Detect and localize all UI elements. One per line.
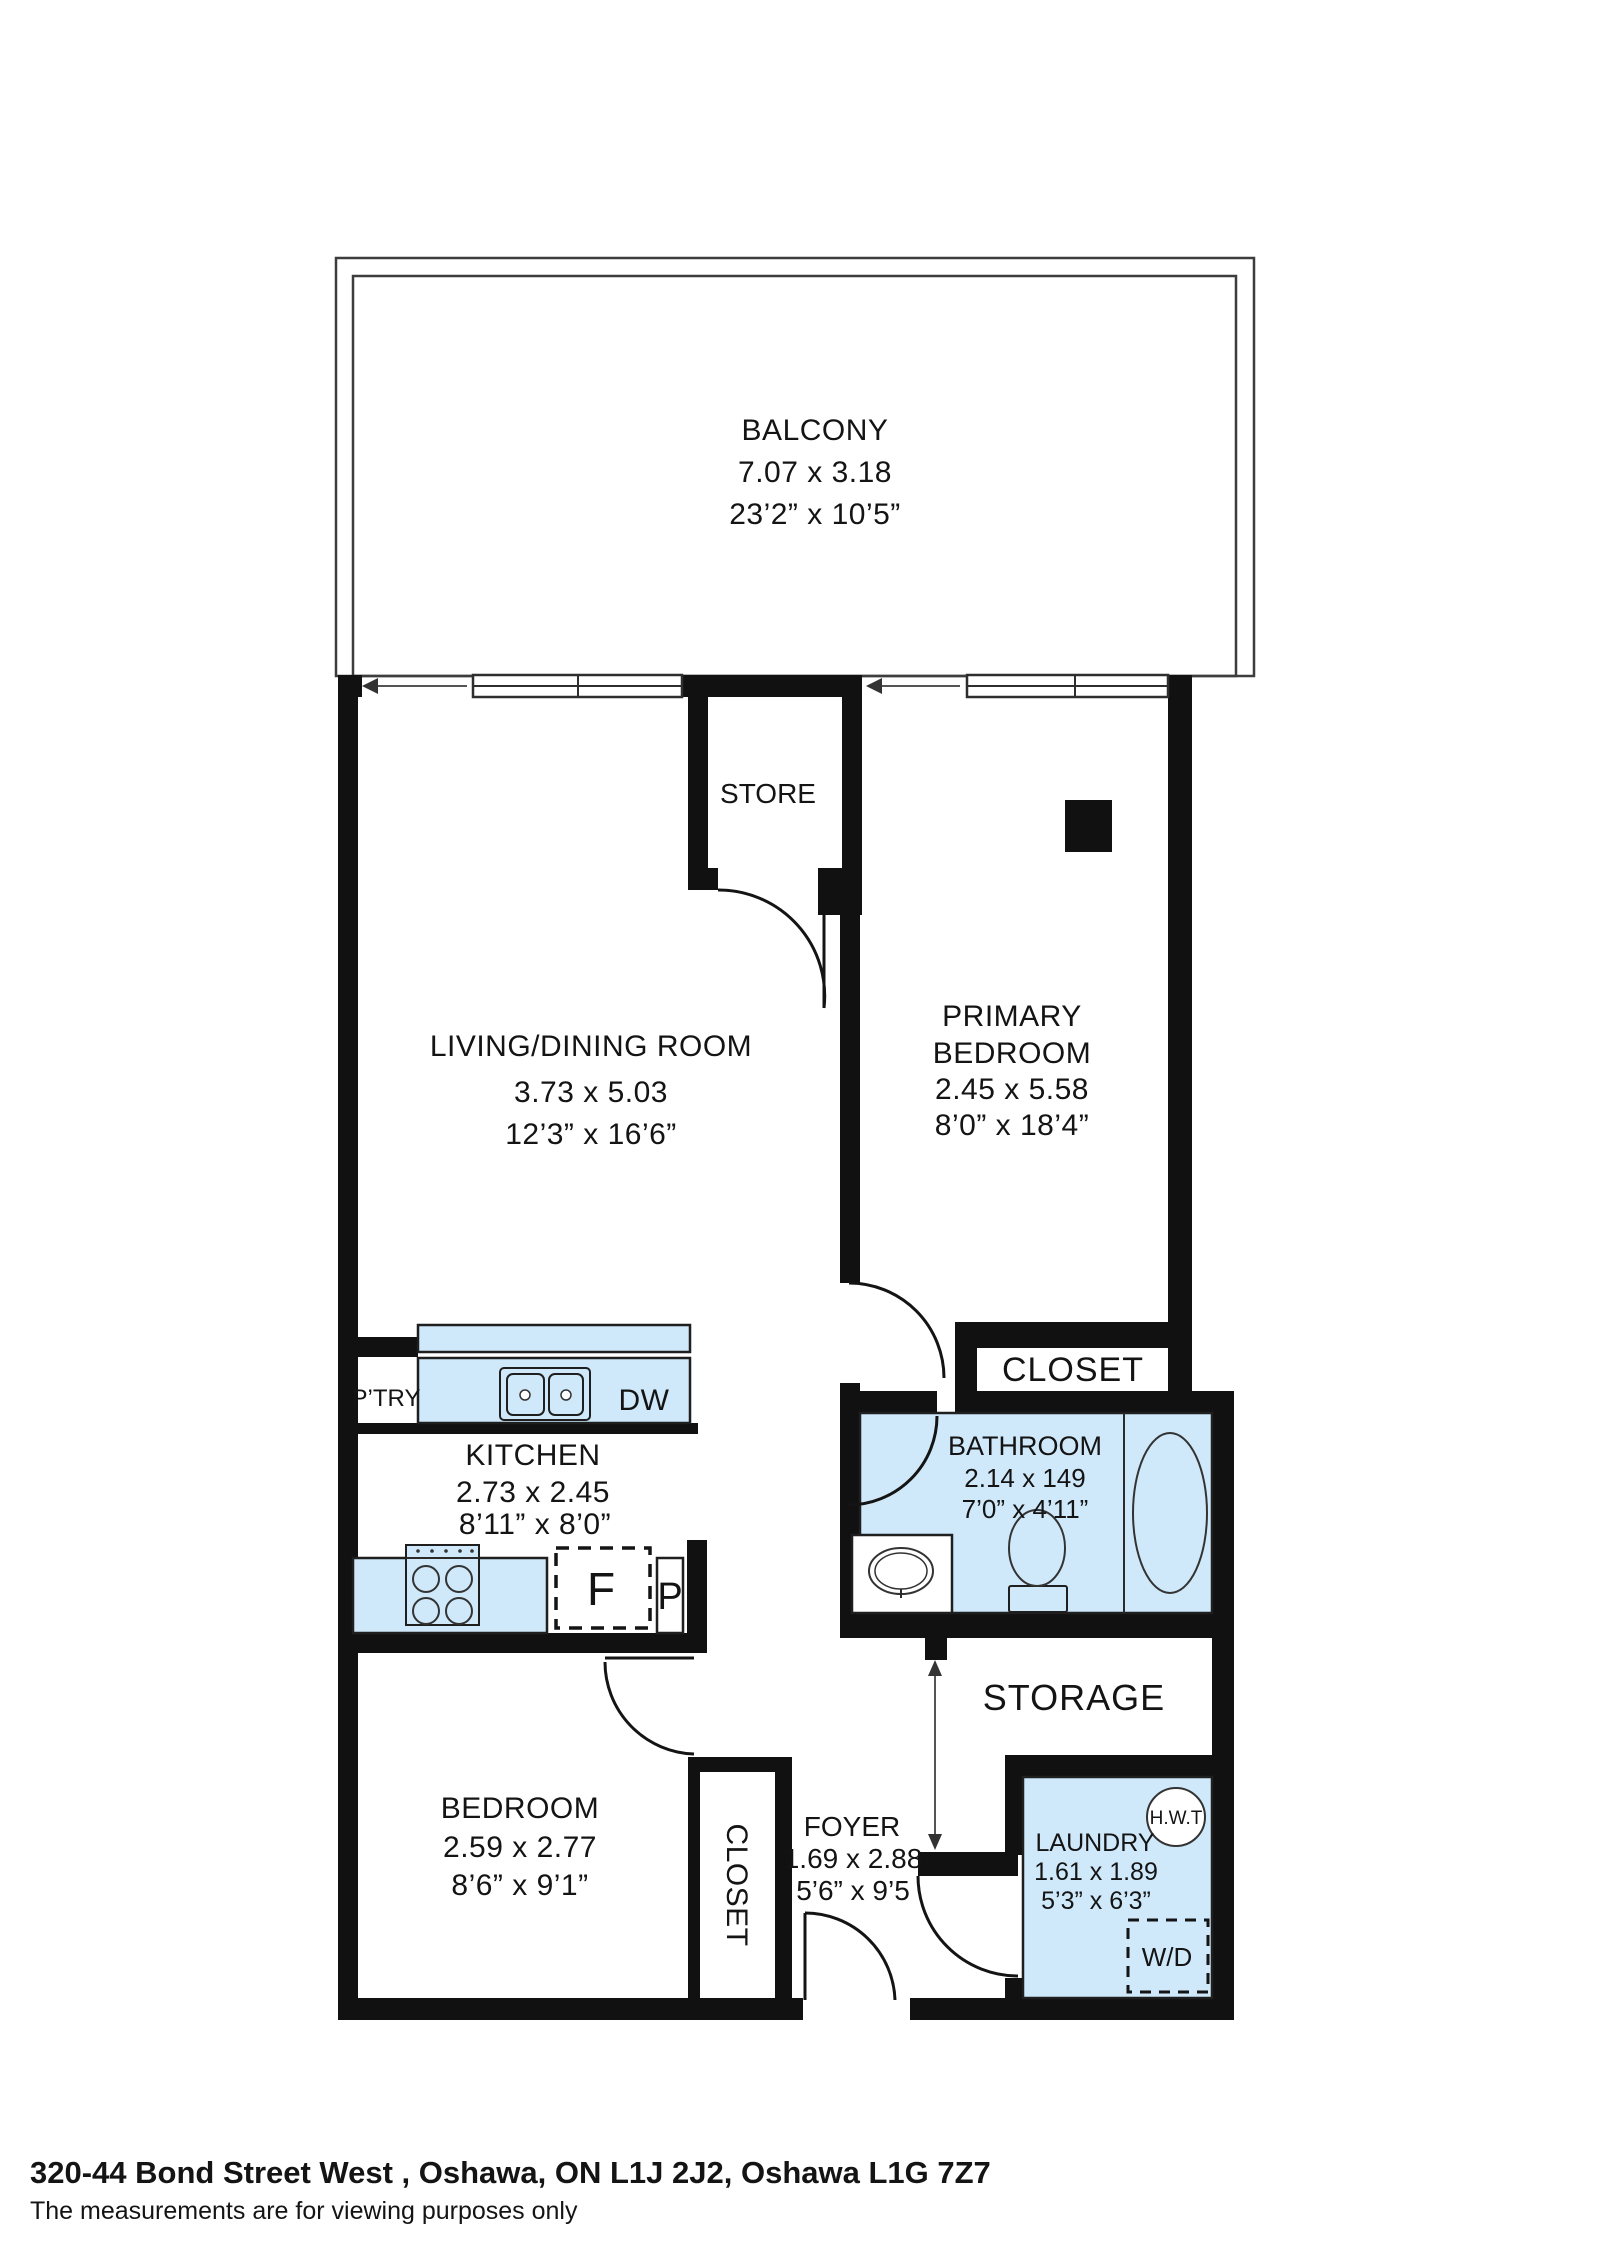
primary-bedroom-door-arc (849, 1283, 944, 1378)
bedroom-closet-label: CLOSET (720, 1823, 753, 1946)
wall-bedroom-closet-left (688, 1757, 700, 2020)
bedroom-imperial: 8’6” x 9’1” (451, 1869, 588, 1902)
bathroom-label: BATHROOM (948, 1431, 1102, 1461)
kitchen-imperial: 8’11” x 8’0” (459, 1508, 611, 1541)
wall-bedroom-closet-right (775, 1757, 792, 2020)
primary-label-line2: BEDROOM (933, 1037, 1092, 1070)
living-label: LIVING/DINING ROOM (430, 1030, 752, 1063)
foyer-label: FOYER (804, 1811, 900, 1842)
bathroom-metric: 2.14 x 149 (964, 1463, 1085, 1493)
wall-primary-closet-top (955, 1322, 1192, 1348)
foyer-imperial: 5’6” x 9’5 (796, 1875, 910, 1906)
stove-knob-icon (470, 1549, 474, 1553)
stove-knob-icon (458, 1549, 462, 1553)
foyer-metric: 1.69 x 2.88 (784, 1843, 923, 1874)
bathroom-imperial: 7’0” x 4’11” (962, 1494, 1089, 1524)
balcony-label: BALCONY (742, 414, 889, 447)
laundry-label: LAUNDRY (1035, 1829, 1154, 1857)
footer: 320-44 Bond Street West , Oshawa, ON L1J… (30, 2155, 991, 2225)
footer-address: 320-44 Bond Street West , Oshawa, ON L1J… (30, 2155, 991, 2190)
sink-drain-right-icon (561, 1390, 571, 1400)
floor-plan: BALCONY 7.07 x 3.18 23’2” x 10’5” STORE … (0, 0, 1600, 2263)
wall-bath-top-left (840, 1391, 937, 1413)
bedroom-label: BEDROOM (441, 1792, 600, 1825)
wall-bedroom-closet-top (688, 1757, 792, 1772)
wall-corner-top-left (338, 675, 362, 697)
room-labels: BALCONY 7.07 x 3.18 23’2” x 10’5” STORE … (352, 414, 1203, 1972)
wall-left (338, 675, 358, 2020)
balcony-imperial: 23’2” x 10’5” (729, 498, 901, 531)
stove-knob-icon (430, 1549, 434, 1553)
arrow-head-living-icon (362, 678, 378, 694)
bedroom-door-arc (605, 1662, 694, 1754)
wall-store-stub-right (818, 868, 862, 915)
column-primary-bedroom (1065, 800, 1112, 852)
vanity-box (852, 1535, 952, 1613)
wall-top-store (682, 675, 862, 697)
hot-water-tank-label: H.W.T (1150, 1808, 1203, 1829)
kitchen-label: KITCHEN (465, 1439, 600, 1472)
sink-drain-left-icon (520, 1390, 530, 1400)
wall-kitchen-bottom (338, 1633, 700, 1653)
wall-store-stub-left (688, 868, 718, 890)
wall-laundry-top (1005, 1755, 1234, 1777)
living-metric: 3.73 x 5.03 (514, 1076, 668, 1109)
wall-right-primary (1168, 675, 1192, 1413)
stove-knob-icon (416, 1549, 420, 1553)
wall-bottom-left (338, 1998, 803, 2020)
bedroom-metric: 2.59 x 2.77 (443, 1831, 597, 1864)
laundry-door-arc (918, 1876, 1018, 1976)
wall-counter-base (353, 1423, 698, 1434)
laundry-metric: 1.61 x 1.89 (1034, 1858, 1158, 1886)
wall-living-primary-divider (840, 915, 860, 1283)
annotations (362, 678, 960, 1850)
laundry-imperial: 5’3” x 6’3” (1041, 1887, 1151, 1915)
wall-laundry-left-upper (1005, 1777, 1023, 1855)
storage-label: STORAGE (983, 1677, 1165, 1718)
toilet-tank-icon (1009, 1586, 1067, 1612)
pantry-tall-label: P (657, 1576, 682, 1618)
kitchen-metric: 2.73 x 2.45 (456, 1476, 610, 1509)
entry-door-arc (805, 1913, 895, 2000)
wall-right-lower (1212, 1391, 1234, 2020)
store-door-arc (718, 890, 825, 1008)
dimension-arrow-down-icon (928, 1834, 942, 1850)
wall-foyer-laundry (918, 1852, 1018, 1876)
pantry-label: P’TRY (352, 1385, 421, 1412)
arrow-head-primary-icon (866, 678, 882, 694)
living-imperial: 12’3” x 16’6” (505, 1118, 677, 1151)
dishwasher-label: DW (619, 1384, 670, 1417)
kitchen-peninsula-counter (418, 1325, 690, 1352)
wall-store-left (688, 697, 708, 890)
wall-pantry-stub (358, 1337, 418, 1357)
primary-closet-label: CLOSET (1002, 1351, 1144, 1389)
primary-label-line1: PRIMARY (942, 1000, 1082, 1033)
wall-storage-stub-top (925, 1638, 947, 1660)
primary-imperial: 8’0” x 18’4” (935, 1109, 1089, 1142)
footer-disclaimer: The measurements are for viewing purpose… (30, 2197, 578, 2225)
wall-bottom-right (910, 1998, 1234, 2020)
stove-knob-icon (444, 1549, 448, 1553)
dimension-arrow-up-icon (928, 1660, 942, 1676)
primary-metric: 2.45 x 5.58 (935, 1073, 1089, 1106)
fridge-label: F (587, 1563, 615, 1615)
wall-bath-top (972, 1391, 1234, 1413)
wall-bath-bottom (840, 1613, 1234, 1638)
balcony-metric: 7.07 x 3.18 (738, 456, 892, 489)
washer-dryer-label: W/D (1142, 1942, 1193, 1972)
store-label: STORE (720, 778, 816, 809)
